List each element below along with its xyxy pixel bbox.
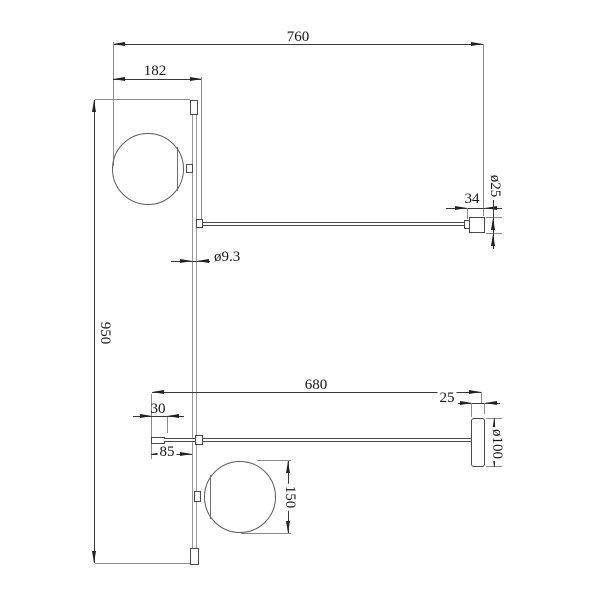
- dim-o93-arrow-right: [197, 259, 209, 263]
- lower-sphere-connector: [194, 491, 201, 502]
- ext-line-sphere-left: [113, 42, 114, 166]
- dim-o25-arrow-bottom: [491, 234, 495, 246]
- dim-o100-label: ø100: [489, 427, 505, 461]
- dim-950-line: [94, 100, 95, 563]
- dim-950-arrow-top: [92, 100, 96, 112]
- rod-bottom-cap: [190, 548, 199, 565]
- dim-760-arrow-left: [113, 42, 125, 46]
- socket-body: [469, 217, 485, 233]
- canopy-disc: [471, 418, 485, 467]
- dim-680-arrow-right: [469, 390, 481, 394]
- dim-34-arrow-right: [485, 206, 497, 210]
- dim-150-label: 150: [282, 484, 298, 511]
- dim-30-arrow-right: [167, 414, 179, 418]
- dim-85-arrow-right: [180, 452, 192, 456]
- ext-line-30-right: [167, 417, 168, 433]
- ext-line-182-right: [201, 77, 202, 220]
- lower-sphere: [204, 461, 276, 533]
- lamp-dimension-drawing: 760 182 950 34 ø25 ø9.3 680: [0, 0, 600, 600]
- ext-line-150-bottom: [241, 533, 291, 534]
- dim-25-label: 25: [438, 390, 457, 406]
- dim-o93-arrow-left: [180, 259, 192, 263]
- dim-30-label: 30: [151, 401, 166, 417]
- lower-arm-tip: [151, 437, 165, 444]
- dim-680-label: 680: [305, 377, 328, 393]
- dim-950-label: 950: [97, 322, 113, 345]
- dim-182-arrow-left: [113, 77, 125, 81]
- dim-760-label: 760: [287, 29, 310, 45]
- ext-line-25-right: [484, 403, 485, 414]
- ext-line-950-bottom: [95, 563, 190, 564]
- upper-sphere: [112, 133, 184, 205]
- lower-sphere-chord: [210, 475, 211, 519]
- dim-680-arrow-left: [152, 390, 164, 394]
- dim-182-label: 182: [144, 63, 167, 79]
- ext-line-25-left: [471, 403, 472, 417]
- dim-85-label: 85: [158, 444, 177, 460]
- upper-sphere-chord: [177, 147, 178, 191]
- upper-arm-rod-connector: [196, 219, 203, 228]
- dim-150-arrow-top: [286, 461, 290, 473]
- dim-760-arrow-right: [471, 42, 483, 46]
- ext-line-950-top: [95, 99, 190, 100]
- dim-25-arrow-right: [485, 401, 497, 405]
- vertical-rod: [192, 113, 197, 550]
- dim-o25-label: ø25: [487, 173, 503, 200]
- upper-arm: [202, 222, 465, 226]
- lower-arm: [164, 438, 472, 442]
- dim-182-line: [113, 79, 202, 80]
- upper-sphere-connector: [186, 164, 193, 173]
- dim-34-label: 34: [465, 191, 480, 207]
- dim-o25-arrow-top: [491, 218, 495, 230]
- dim-150-arrow-bottom: [286, 521, 290, 533]
- dim-o93-label: ø9.3: [214, 249, 240, 265]
- ext-line-34-left: [467, 208, 468, 219]
- dim-950-arrow-bottom: [92, 551, 96, 563]
- lower-arm-rod-connector: [195, 435, 203, 445]
- ext-line-680-right: [481, 392, 482, 403]
- ext-line-760-right: [483, 44, 484, 216]
- rod-top-cap: [190, 100, 198, 115]
